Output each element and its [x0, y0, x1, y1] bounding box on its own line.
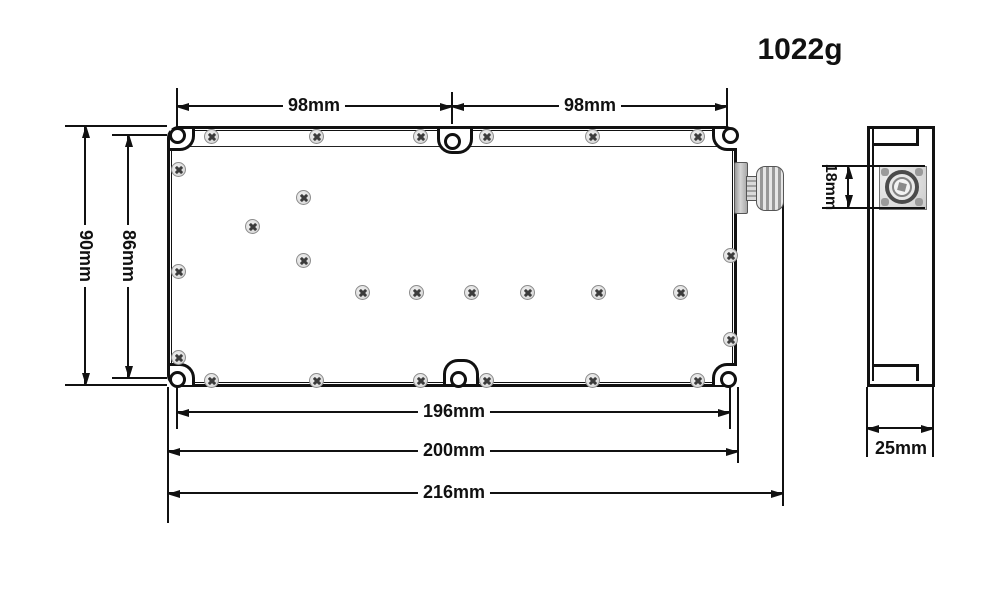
- phillips-screw-icon: [591, 285, 606, 300]
- phillips-screw-icon: [690, 373, 705, 388]
- phillips-screw-icon: [464, 285, 479, 300]
- technical-drawing-canvas: 1022g: [0, 0, 1000, 605]
- side-bottom-notch: [874, 364, 919, 381]
- connector-nut: [756, 166, 784, 211]
- phillips-screw-icon: [723, 248, 738, 263]
- side-top-notch: [874, 129, 919, 146]
- phillips-screw-icon: [520, 285, 535, 300]
- dim-label-196: 196mm: [418, 402, 490, 422]
- extension-line: [932, 387, 934, 457]
- extension-line: [65, 125, 167, 127]
- phillips-screw-icon: [690, 129, 705, 144]
- weight-label: 1022g: [750, 33, 850, 67]
- phillips-screw-icon: [171, 350, 186, 365]
- phillips-screw-icon: [479, 373, 494, 388]
- connector-texture: [915, 198, 923, 206]
- phillips-screw-icon: [479, 129, 494, 144]
- mounting-hole-icon: [450, 371, 467, 388]
- dim-label-18: 18mm: [821, 162, 839, 212]
- dim-label-98-left: 98mm: [283, 96, 345, 116]
- dim-label-25: 25mm: [870, 439, 932, 459]
- dimension-line-25: [867, 427, 933, 429]
- dim-label-98-right: 98mm: [559, 96, 621, 116]
- phillips-screw-icon: [296, 253, 311, 268]
- phillips-screw-icon: [585, 373, 600, 388]
- dim-label-86: 86mm: [118, 225, 138, 287]
- connector-texture: [881, 168, 889, 176]
- extension-line: [782, 196, 784, 506]
- phillips-screw-icon: [413, 373, 428, 388]
- body-seam: [171, 130, 733, 383]
- extension-line: [112, 134, 167, 136]
- phillips-screw-icon: [309, 129, 324, 144]
- phillips-screw-icon: [204, 373, 219, 388]
- dim-label-200: 200mm: [418, 441, 490, 461]
- phillips-screw-icon: [296, 190, 311, 205]
- mounting-hole-icon: [169, 371, 186, 388]
- phillips-screw-icon: [171, 264, 186, 279]
- extension-line: [65, 384, 167, 386]
- phillips-screw-icon: [204, 129, 219, 144]
- extension-line: [176, 387, 178, 429]
- connector-texture: [915, 168, 923, 176]
- phillips-screw-icon: [673, 285, 688, 300]
- extension-line: [866, 387, 868, 457]
- phillips-screw-icon: [723, 332, 738, 347]
- extension-line: [112, 377, 167, 379]
- mounting-hole-icon: [444, 133, 461, 150]
- phillips-screw-icon: [585, 129, 600, 144]
- mounting-hole-icon: [169, 127, 186, 144]
- phillips-screw-icon: [309, 373, 324, 388]
- phillips-screw-icon: [413, 129, 428, 144]
- dim-label-216: 216mm: [418, 483, 490, 503]
- phillips-screw-icon: [409, 285, 424, 300]
- phillips-screw-icon: [245, 219, 260, 234]
- mounting-hole-icon: [720, 371, 737, 388]
- extension-line: [729, 387, 731, 429]
- phillips-screw-icon: [355, 285, 370, 300]
- phillips-screw-icon: [171, 162, 186, 177]
- dimension-line-18: [847, 167, 849, 207]
- connector-texture: [881, 198, 889, 206]
- dim-label-90: 90mm: [75, 225, 95, 287]
- mounting-hole-icon: [722, 127, 739, 144]
